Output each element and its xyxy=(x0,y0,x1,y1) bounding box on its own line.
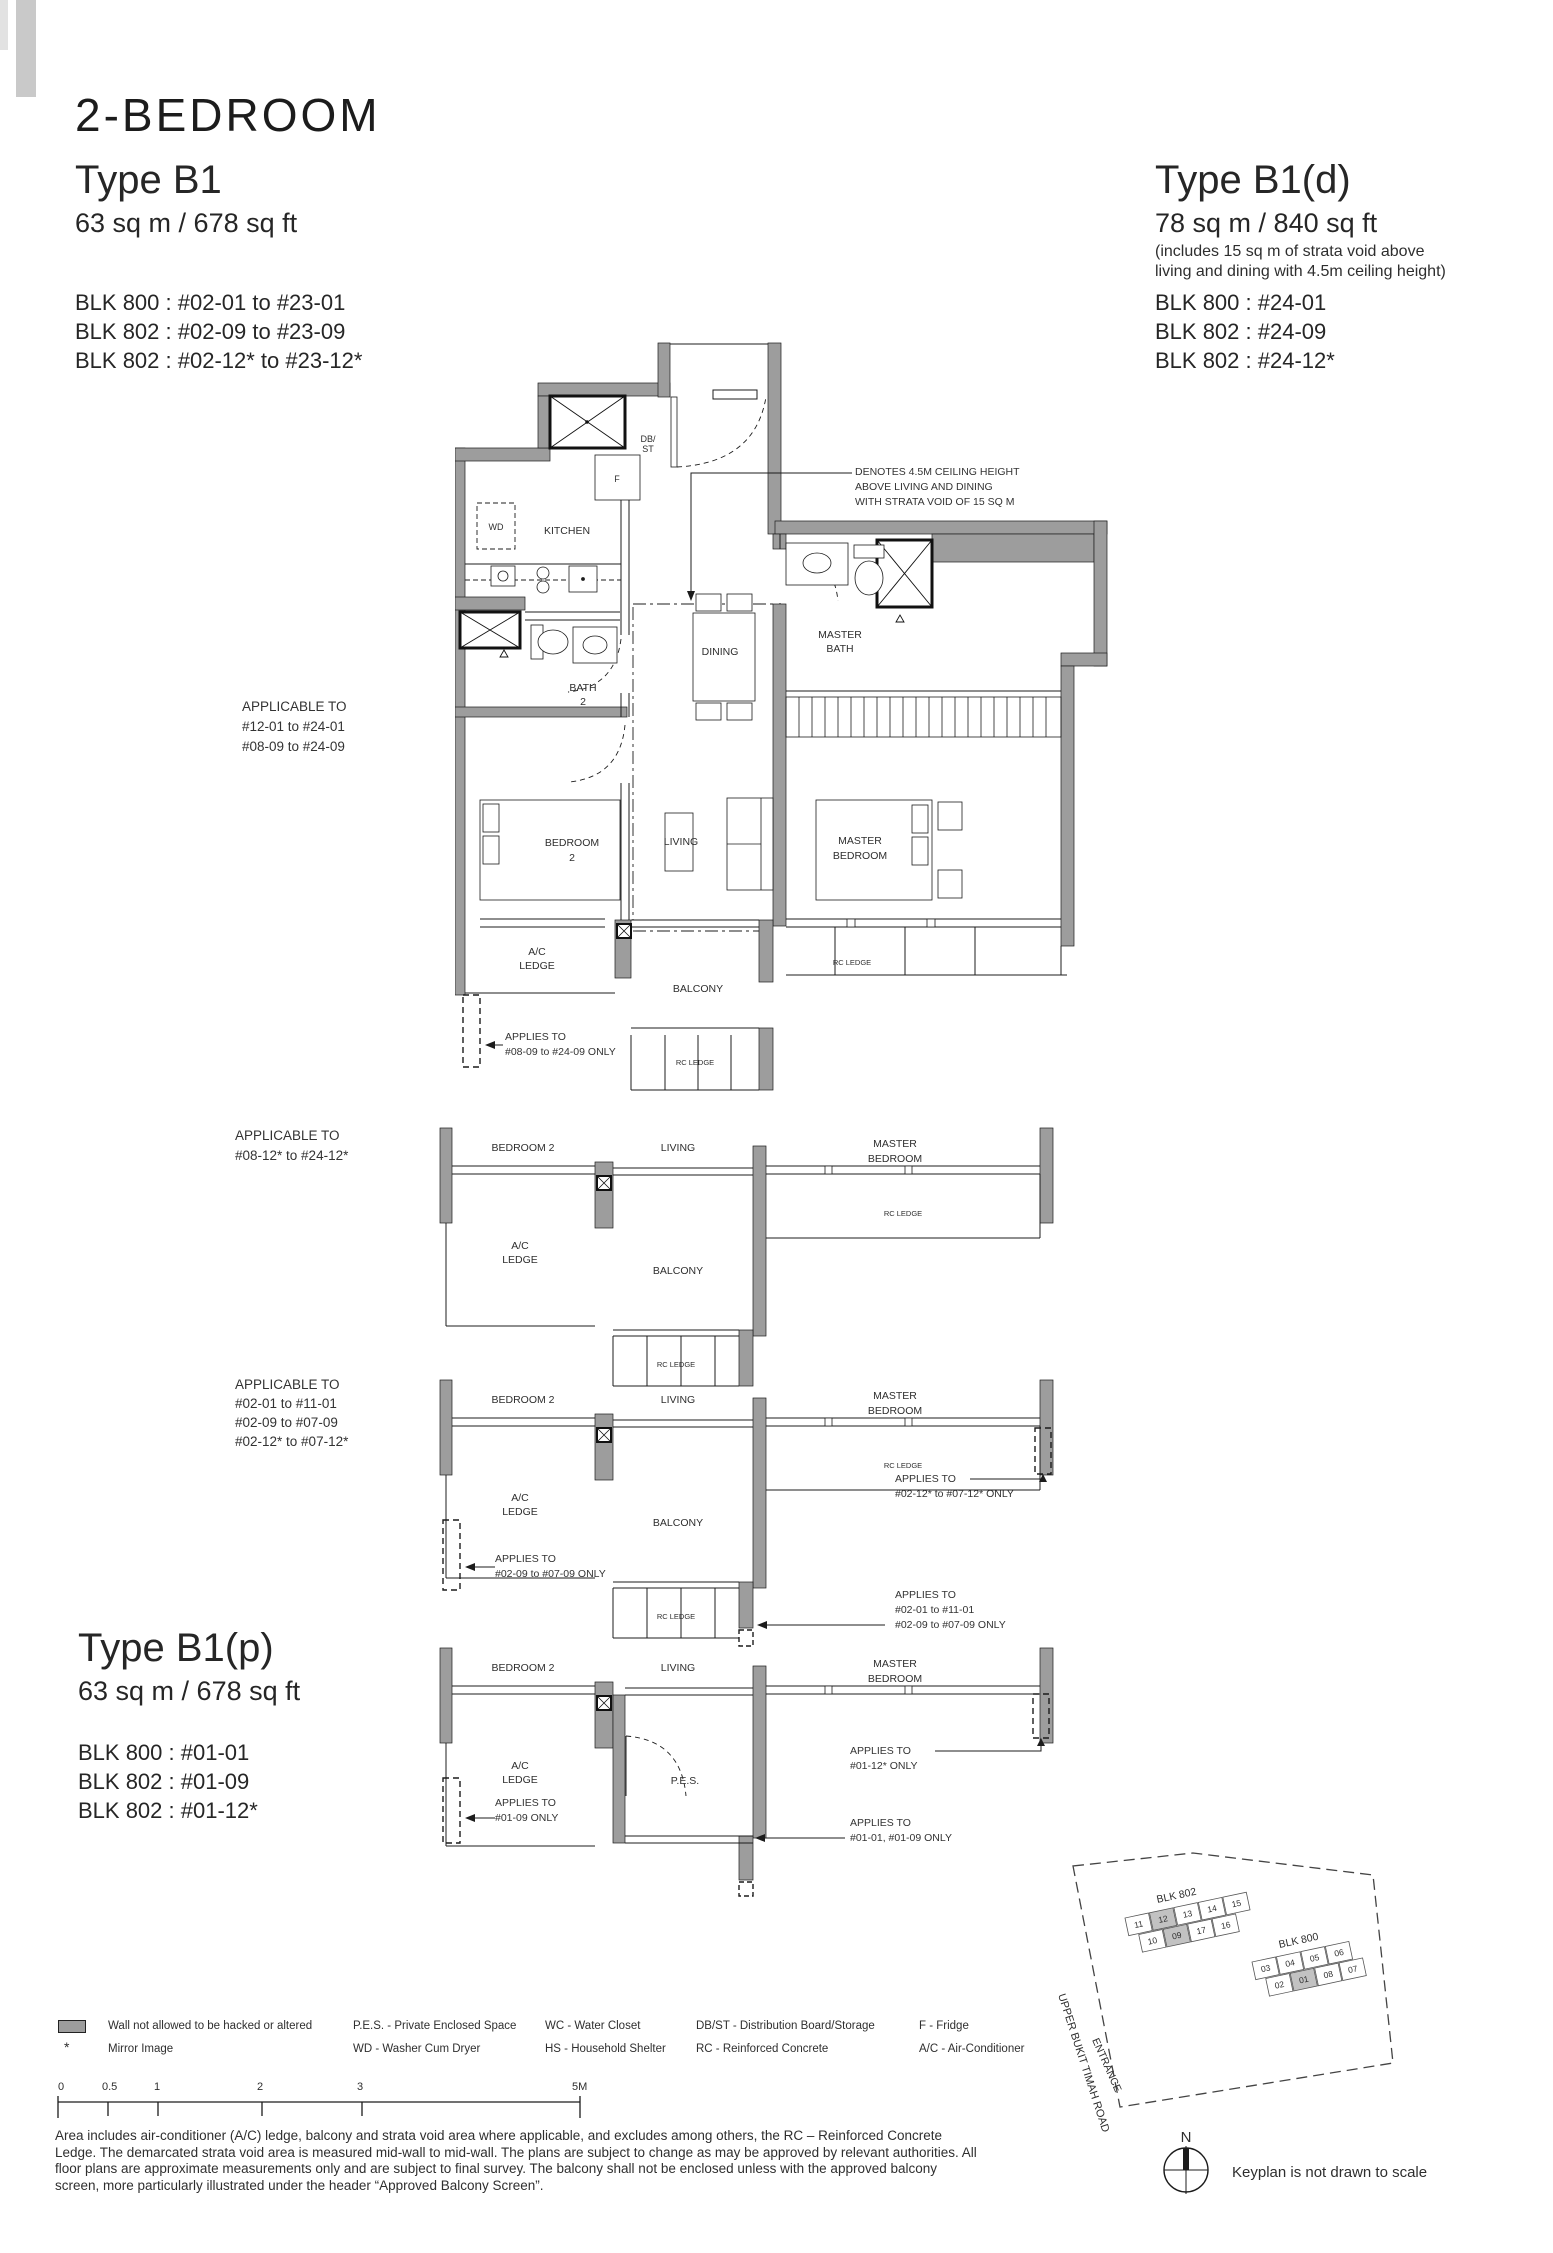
page-title: 2-BEDROOM xyxy=(75,88,381,142)
floorplan-page: 2-BEDROOM Type B1 63 sq m / 678 sq ft BL… xyxy=(0,0,1553,2253)
ac-ledge-label-1: A/C xyxy=(511,1492,529,1504)
type-b1d-title: Type B1(d) xyxy=(1155,158,1351,203)
legend-mirror: Mirror Image xyxy=(108,2042,173,2056)
kitchen-label: KITCHEN xyxy=(544,525,590,537)
ann-line: APPLICABLE TO xyxy=(242,697,347,717)
ac-ledge-label-2: LEDGE xyxy=(502,1774,538,1786)
note-line: (includes 15 sq m of strata void above xyxy=(1155,242,1446,262)
blk-800-cluster: BLK 800 03 04 05 06 02 01 08 07 xyxy=(1248,1923,1366,1998)
legend-ac: A/C - Air-Conditioner xyxy=(919,2042,1024,2056)
master-bath-label-1: MASTER xyxy=(818,629,862,641)
jambs xyxy=(825,1418,912,1426)
ann-line: #08-09 to #24-09 xyxy=(242,737,347,757)
ann-line: #02-01 to #11-01 xyxy=(235,1394,348,1413)
structure-lines xyxy=(446,1686,1040,1846)
blk-line: BLK 800 : #01-01 xyxy=(78,1738,258,1767)
ann-line: #02-12* to #07-12* xyxy=(235,1432,348,1451)
type-b1d-note: (includes 15 sq m of strata void above l… xyxy=(1155,242,1446,282)
variant-plan-4: BEDROOM 2 LIVING MASTER BEDROOM A/C LEDG… xyxy=(435,1638,1135,1898)
master-bedroom-label-2: BEDROOM xyxy=(868,1405,922,1417)
blk800-label: BLK 800 xyxy=(1278,1931,1320,1951)
master-bedroom-label-1: MASTER xyxy=(873,1138,917,1150)
wall-legend-swatch xyxy=(58,2020,86,2033)
ac-ledge-label-1: A/C xyxy=(511,1760,529,1772)
note-line: living and dining with 4.5m ceiling heig… xyxy=(1155,262,1446,282)
blk-line: BLK 802 : #01-12* xyxy=(78,1796,258,1825)
rc-ledge-right-label: RC LEDGE xyxy=(884,1209,922,1218)
balcony-shaft-icon xyxy=(597,1696,611,1710)
legend-dbst: DB/ST - Distribution Board/Storage xyxy=(696,2019,875,2033)
ann-line: #08-12* to #24-12* xyxy=(235,1146,348,1166)
disclaimer-line: Ledge. The demarcated strata void area i… xyxy=(55,2145,977,2162)
variant-plan-2: BEDROOM 2 LIVING MASTER BEDROOM A/C LEDG… xyxy=(435,1118,1135,1408)
legend-fridge: F - Fridge xyxy=(919,2019,969,2033)
master-bedroom-label-2: BEDROOM xyxy=(833,850,887,862)
legend-hs: HS - Household Shelter xyxy=(545,2042,666,2056)
type-b1-title: Type B1 xyxy=(75,158,222,203)
applicable-3: APPLICABLE TO #02-01 to #11-01 #02-09 to… xyxy=(235,1375,348,1451)
blk-802-cluster: BLK 802 11 12 13 14 15 10 09 17 xyxy=(1121,1876,1254,1955)
corner-bar-small xyxy=(0,0,8,50)
scale-1: 1 xyxy=(154,2081,160,2093)
fridge-label: F xyxy=(614,474,620,484)
ann-line: #02-09 to #07-09 xyxy=(235,1413,348,1432)
rc-ledge-right-label: RC LEDGE xyxy=(884,1461,922,1470)
north-label: N xyxy=(1181,2129,1192,2146)
master-bedroom-label-2: BEDROOM xyxy=(868,1153,922,1165)
ann-line: APPLICABLE TO xyxy=(235,1126,348,1146)
ac-ledge-label-1: A/C xyxy=(528,946,546,958)
master-bedroom-label-2: BEDROOM xyxy=(868,1673,922,1685)
scale-0: 0 xyxy=(58,2081,64,2093)
type-b1p-area: 63 sq m / 678 sq ft xyxy=(78,1676,300,1707)
balcony-label: BALCONY xyxy=(653,1517,703,1529)
disclaimer-line: Area includes air-conditioner (A/C) ledg… xyxy=(55,2128,977,2145)
scale-bar: 0 0.5 1 2 3 5M xyxy=(50,2072,630,2124)
scale-05: 0.5 xyxy=(102,2081,117,2093)
type-b1d-blocks: BLK 800 : #24-01 BLK 802 : #24-09 BLK 80… xyxy=(1155,288,1335,375)
type-b1d-area: 78 sq m / 840 sq ft xyxy=(1155,208,1377,239)
corner-bar xyxy=(16,0,36,97)
applicable-1: APPLICABLE TO #12-01 to #24-01 #08-09 to… xyxy=(242,697,347,757)
balcony-label: BALCONY xyxy=(653,1265,703,1277)
variant-plan-3: BEDROOM 2 LIVING MASTER BEDROOM A/C LEDG… xyxy=(435,1370,1135,1670)
living-label: LIVING xyxy=(661,1394,695,1406)
pes-label: P.E.S. xyxy=(671,1775,699,1787)
scale-3: 3 xyxy=(357,2081,363,2093)
balcony-shaft-icon xyxy=(597,1428,611,1442)
bedroom2-label: BEDROOM 2 xyxy=(491,1142,554,1154)
disclaimer-line: floor plans are approximate measurements… xyxy=(55,2161,977,2178)
rc-ledge-bottom-label: RC LEDGE xyxy=(676,1058,714,1067)
wd-label: WD xyxy=(489,522,504,532)
bath2-label-1: BATH xyxy=(569,682,596,694)
legend-wd: WD - Washer Cum Dryer xyxy=(353,2042,480,2056)
ann-line: #12-01 to #24-01 xyxy=(242,717,347,737)
blk-line: BLK 802 : #01-09 xyxy=(78,1767,258,1796)
north-compass-icon: N xyxy=(1164,2129,1208,2194)
type-b1p-blocks: BLK 800 : #01-01 BLK 802 : #01-09 BLK 80… xyxy=(78,1738,258,1825)
blk-line: BLK 802 : #24-09 xyxy=(1155,317,1335,346)
keyplan: UPPER BUKIT TIMAH ROAD ENTRANCE BLK 802 … xyxy=(1040,1840,1540,2240)
bedroom2-label-2: 2 xyxy=(569,852,575,864)
blk-line: BLK 802 : #02-09 to #23-09 xyxy=(75,317,362,346)
walls xyxy=(440,1648,1053,1880)
scale-5m: 5M xyxy=(572,2081,587,2093)
legend-wc: WC - Water Closet xyxy=(545,2019,640,2033)
blk-line: BLK 802 : #24-12* xyxy=(1155,346,1335,375)
applicable-2: APPLICABLE TO #08-12* to #24-12* xyxy=(235,1126,348,1166)
hs-shaft-icon xyxy=(550,396,625,448)
legend-rc: RC - Reinforced Concrete xyxy=(696,2042,828,2056)
blk-line: BLK 800 : #24-01 xyxy=(1155,288,1335,317)
ac-ledge-label-2: LEDGE xyxy=(502,1506,538,1518)
bedroom2-label-1: BEDROOM xyxy=(545,837,599,849)
bedroom2-label: BEDROOM 2 xyxy=(491,1662,554,1674)
blk-line: BLK 800 : #02-01 to #23-01 xyxy=(75,288,362,317)
balcony-label: BALCONY xyxy=(673,983,723,995)
living-label: LIVING xyxy=(661,1662,695,1674)
type-b1-blocks: BLK 800 : #02-01 to #23-01 BLK 802 : #02… xyxy=(75,288,362,375)
rc-ledge-right-label: RC LEDGE xyxy=(833,958,871,967)
master-bath-label-2: BATH xyxy=(826,643,853,655)
ac-ledge-label-2: LEDGE xyxy=(519,960,555,972)
master-bedroom-label-1: MASTER xyxy=(873,1658,917,1670)
balcony-shaft-icon xyxy=(617,924,631,938)
rc-ledge-bottom-label: RC LEDGE xyxy=(657,1360,695,1369)
living-label: LIVING xyxy=(664,836,698,848)
wardrobe xyxy=(786,697,1061,737)
dbst-label-2: ST xyxy=(642,444,654,454)
ac-ledge-label-2: LEDGE xyxy=(502,1254,538,1266)
disclaimer-line: screen, more particularly illustrated un… xyxy=(55,2178,977,2195)
mirror-asterisk: * xyxy=(64,2040,69,2054)
jambs xyxy=(825,1686,912,1694)
legend-wall: Wall not allowed to be hacked or altered xyxy=(108,2019,312,2033)
ac-shaft-icon xyxy=(877,540,932,622)
disclaimer: Area includes air-conditioner (A/C) ledg… xyxy=(55,2128,977,2194)
ac-ledge-label-1: A/C xyxy=(511,1240,529,1252)
scale-2: 2 xyxy=(257,2081,263,2093)
living-label: LIVING xyxy=(661,1142,695,1154)
walls xyxy=(455,343,1107,1090)
bedroom2-label: BEDROOM 2 xyxy=(491,1394,554,1406)
type-b1p-title: Type B1(p) xyxy=(78,1626,274,1671)
balcony-shaft-icon xyxy=(597,1176,611,1190)
blk-line: BLK 802 : #02-12* to #23-12* xyxy=(75,346,362,375)
main-floor-plan: KITCHEN WD F DB/ ST DINING MASTER BATH B… xyxy=(455,335,1115,1115)
master-bedroom-label-1: MASTER xyxy=(873,1390,917,1402)
blk802-label: BLK 802 xyxy=(1156,1886,1198,1906)
keyplan-note: Keyplan is not drawn to scale xyxy=(1232,2164,1427,2181)
master-bedroom-label-1: MASTER xyxy=(838,835,882,847)
dining-label: DINING xyxy=(702,646,739,658)
ann-line: APPLICABLE TO xyxy=(235,1375,348,1394)
bath2-label-2: 2 xyxy=(580,696,586,708)
scale-ruler xyxy=(58,2096,580,2118)
legend-pes: P.E.S. - Private Enclosed Space xyxy=(353,2019,516,2033)
shaft-icon xyxy=(460,612,520,657)
rc-ledge-bottom-label: RC LEDGE xyxy=(657,1612,695,1621)
walls xyxy=(440,1380,1053,1628)
pes-door-arc xyxy=(626,1736,686,1796)
dbst-label-1: DB/ xyxy=(640,434,656,444)
type-b1-area: 63 sq m / 678 sq ft xyxy=(75,208,297,239)
jambs xyxy=(825,1166,912,1174)
